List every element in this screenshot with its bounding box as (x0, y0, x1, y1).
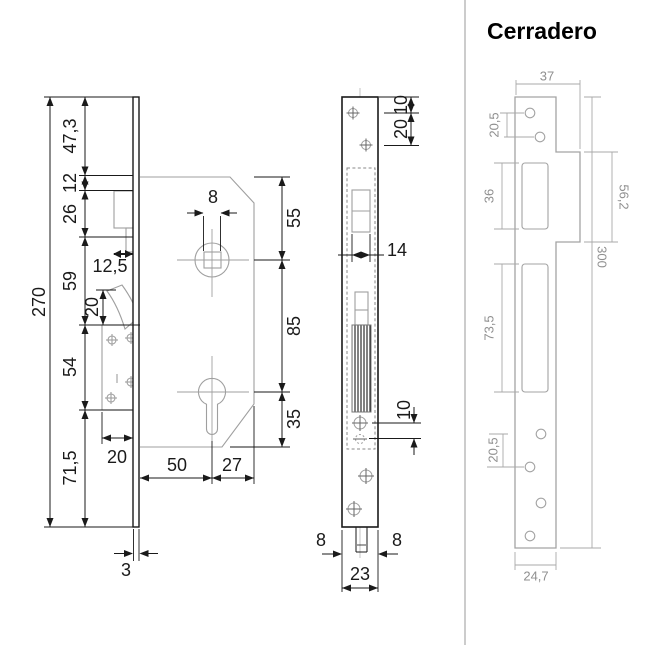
dim-plate-thickness: 3 (121, 561, 131, 579)
hook-bolt-front (352, 325, 371, 412)
strike-plate-title: Cerradero (487, 20, 597, 43)
lock-side-view (44, 97, 290, 561)
dim-strike-latch-slot: 36 (483, 189, 496, 203)
dim-edge-to-hole: 10 (392, 95, 410, 115)
dim-strike-top-width: 37 (540, 70, 554, 83)
euro-cylinder-hole (177, 356, 249, 441)
left-dimension-lines (50, 97, 282, 554)
left-arrowheads (47, 97, 286, 557)
dim-cylinder-to-bottom: 35 (285, 409, 303, 429)
dim-total-height: 270 (30, 287, 48, 317)
dim-chain-59: 59 (61, 271, 79, 291)
dim-chain-71-5: 71,5 (61, 450, 79, 485)
strike-plate-view (487, 80, 618, 570)
dim-chain-47-3: 47,3 (61, 118, 79, 153)
dim-plate-width: 23 (350, 565, 370, 583)
faceplate-side (133, 97, 139, 527)
dim-offset-12-5: 12,5 (92, 257, 127, 275)
lock-front-view (322, 88, 421, 592)
dim-strike-bolt-slot: 73,5 (483, 315, 496, 340)
dim-hole-spacing: 20 (392, 119, 410, 139)
technical-drawing: Cerradero 270 47,3 12 26 59 54 71,5 12,5… (0, 0, 645, 645)
faceplate-front (342, 97, 378, 527)
dim-chain-26: 26 (61, 204, 79, 224)
dim-strike-bottom-width: 24,7 (523, 570, 548, 583)
dim-top-to-spindle: 55 (285, 208, 303, 228)
dim-chain-54: 54 (61, 357, 79, 377)
dim-backset: 50 (167, 456, 187, 474)
dim-strike-lip-height: 56,2 (618, 184, 631, 209)
dim-hook-height: 20 (83, 297, 101, 317)
left-extension-lines (44, 97, 290, 561)
dim-chain-12: 12 (61, 173, 79, 193)
dim-latch-width: 14 (387, 241, 407, 259)
dim-center-to-edge: 27 (222, 456, 242, 474)
lock-body-step-upper (114, 191, 133, 228)
screw-marks (105, 332, 137, 404)
dim-side-margin-right: 8 (392, 531, 402, 549)
dim-strike-top-hole-spacing: 20,5 (488, 112, 501, 137)
dim-strike-bottom-hole-spacing: 20,5 (487, 437, 500, 462)
lock-body-step-small (126, 228, 133, 252)
dim-case-depth: 20 (107, 448, 127, 466)
dim-side-margin-left: 8 (316, 531, 326, 549)
dim-strike-total-height: 300 (596, 246, 609, 268)
dim-lower-hole-spacing: 10 (395, 400, 413, 420)
dim-spindle-to-cylinder: 85 (285, 316, 303, 336)
spindle-follower (177, 229, 249, 297)
lock-case-outline (140, 177, 254, 447)
dim-spindle-hole: 8 (208, 188, 218, 206)
bottom-tail (356, 527, 367, 552)
